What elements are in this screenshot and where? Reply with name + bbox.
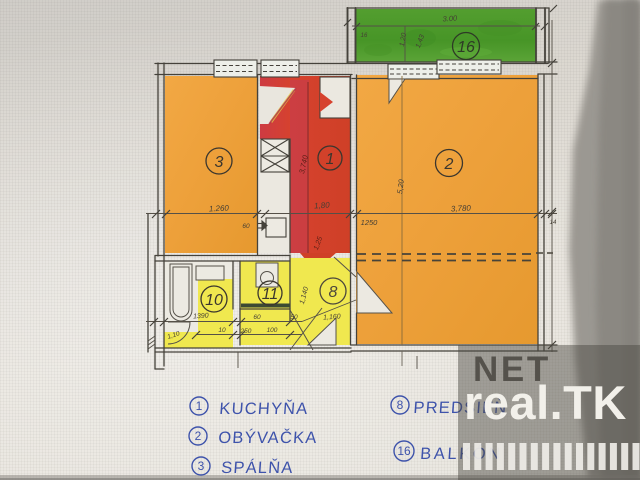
- svg-text:8: 8: [329, 284, 338, 301]
- svg-text:50: 50: [290, 314, 298, 321]
- svg-text:1: 1: [196, 399, 203, 413]
- svg-text:5,20: 5,20: [395, 178, 406, 194]
- svg-text:OBÝVAČKA: OBÝVAČKA: [218, 428, 318, 447]
- svg-text:3: 3: [215, 154, 224, 171]
- svg-text:16: 16: [457, 39, 475, 56]
- svg-text:3,780: 3,780: [451, 203, 472, 213]
- svg-text:2: 2: [444, 156, 454, 173]
- svg-text:1,160: 1,160: [323, 313, 341, 321]
- svg-text:250: 250: [240, 328, 252, 335]
- svg-text:real.TK: real.TK: [464, 376, 627, 429]
- svg-text:3: 3: [198, 459, 205, 473]
- svg-text:1.260: 1.260: [209, 203, 230, 213]
- svg-text:60: 60: [253, 314, 261, 321]
- svg-text:16: 16: [397, 444, 411, 458]
- svg-text:16: 16: [361, 33, 368, 39]
- svg-text:2: 2: [195, 429, 202, 443]
- svg-text:14: 14: [550, 220, 557, 226]
- svg-text:60: 60: [242, 223, 250, 230]
- svg-text:1,80: 1,80: [314, 200, 331, 210]
- svg-text:KUCHYŇA: KUCHYŇA: [219, 399, 309, 418]
- svg-text:10: 10: [205, 292, 223, 309]
- svg-text:8: 8: [397, 398, 404, 412]
- svg-text:1390: 1390: [193, 312, 209, 320]
- svg-text:10: 10: [218, 327, 226, 334]
- svg-text:1: 1: [326, 151, 335, 168]
- svg-text:1250: 1250: [361, 218, 379, 227]
- svg-text:SPÁLŇA: SPÁLŇA: [221, 458, 295, 477]
- svg-text:11: 11: [262, 286, 279, 303]
- svg-text:3.00: 3.00: [442, 13, 458, 23]
- svg-text:100: 100: [267, 327, 278, 334]
